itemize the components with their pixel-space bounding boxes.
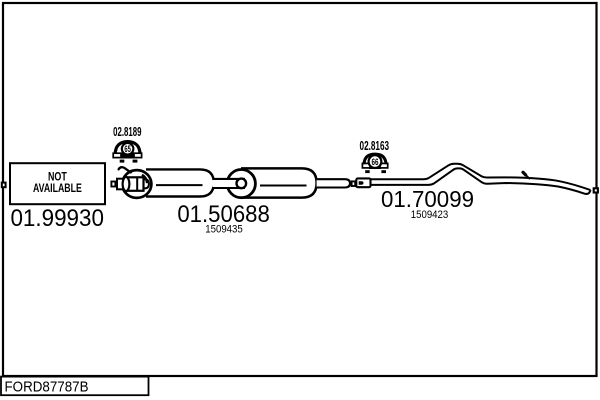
svg-text:65: 65	[124, 144, 131, 154]
svg-text:AVAILABLE: AVAILABLE	[33, 183, 82, 195]
svg-text:02.8163: 02.8163	[360, 138, 390, 153]
svg-text:NOT: NOT	[48, 172, 67, 184]
svg-text:66: 66	[372, 157, 379, 167]
svg-text:1509423: 1509423	[411, 209, 449, 221]
svg-text:FORD87787B: FORD87787B	[5, 379, 89, 395]
svg-text:01.99930: 01.99930	[10, 205, 104, 232]
svg-text:1509435: 1509435	[205, 223, 243, 235]
svg-text:02.8189: 02.8189	[113, 124, 141, 139]
